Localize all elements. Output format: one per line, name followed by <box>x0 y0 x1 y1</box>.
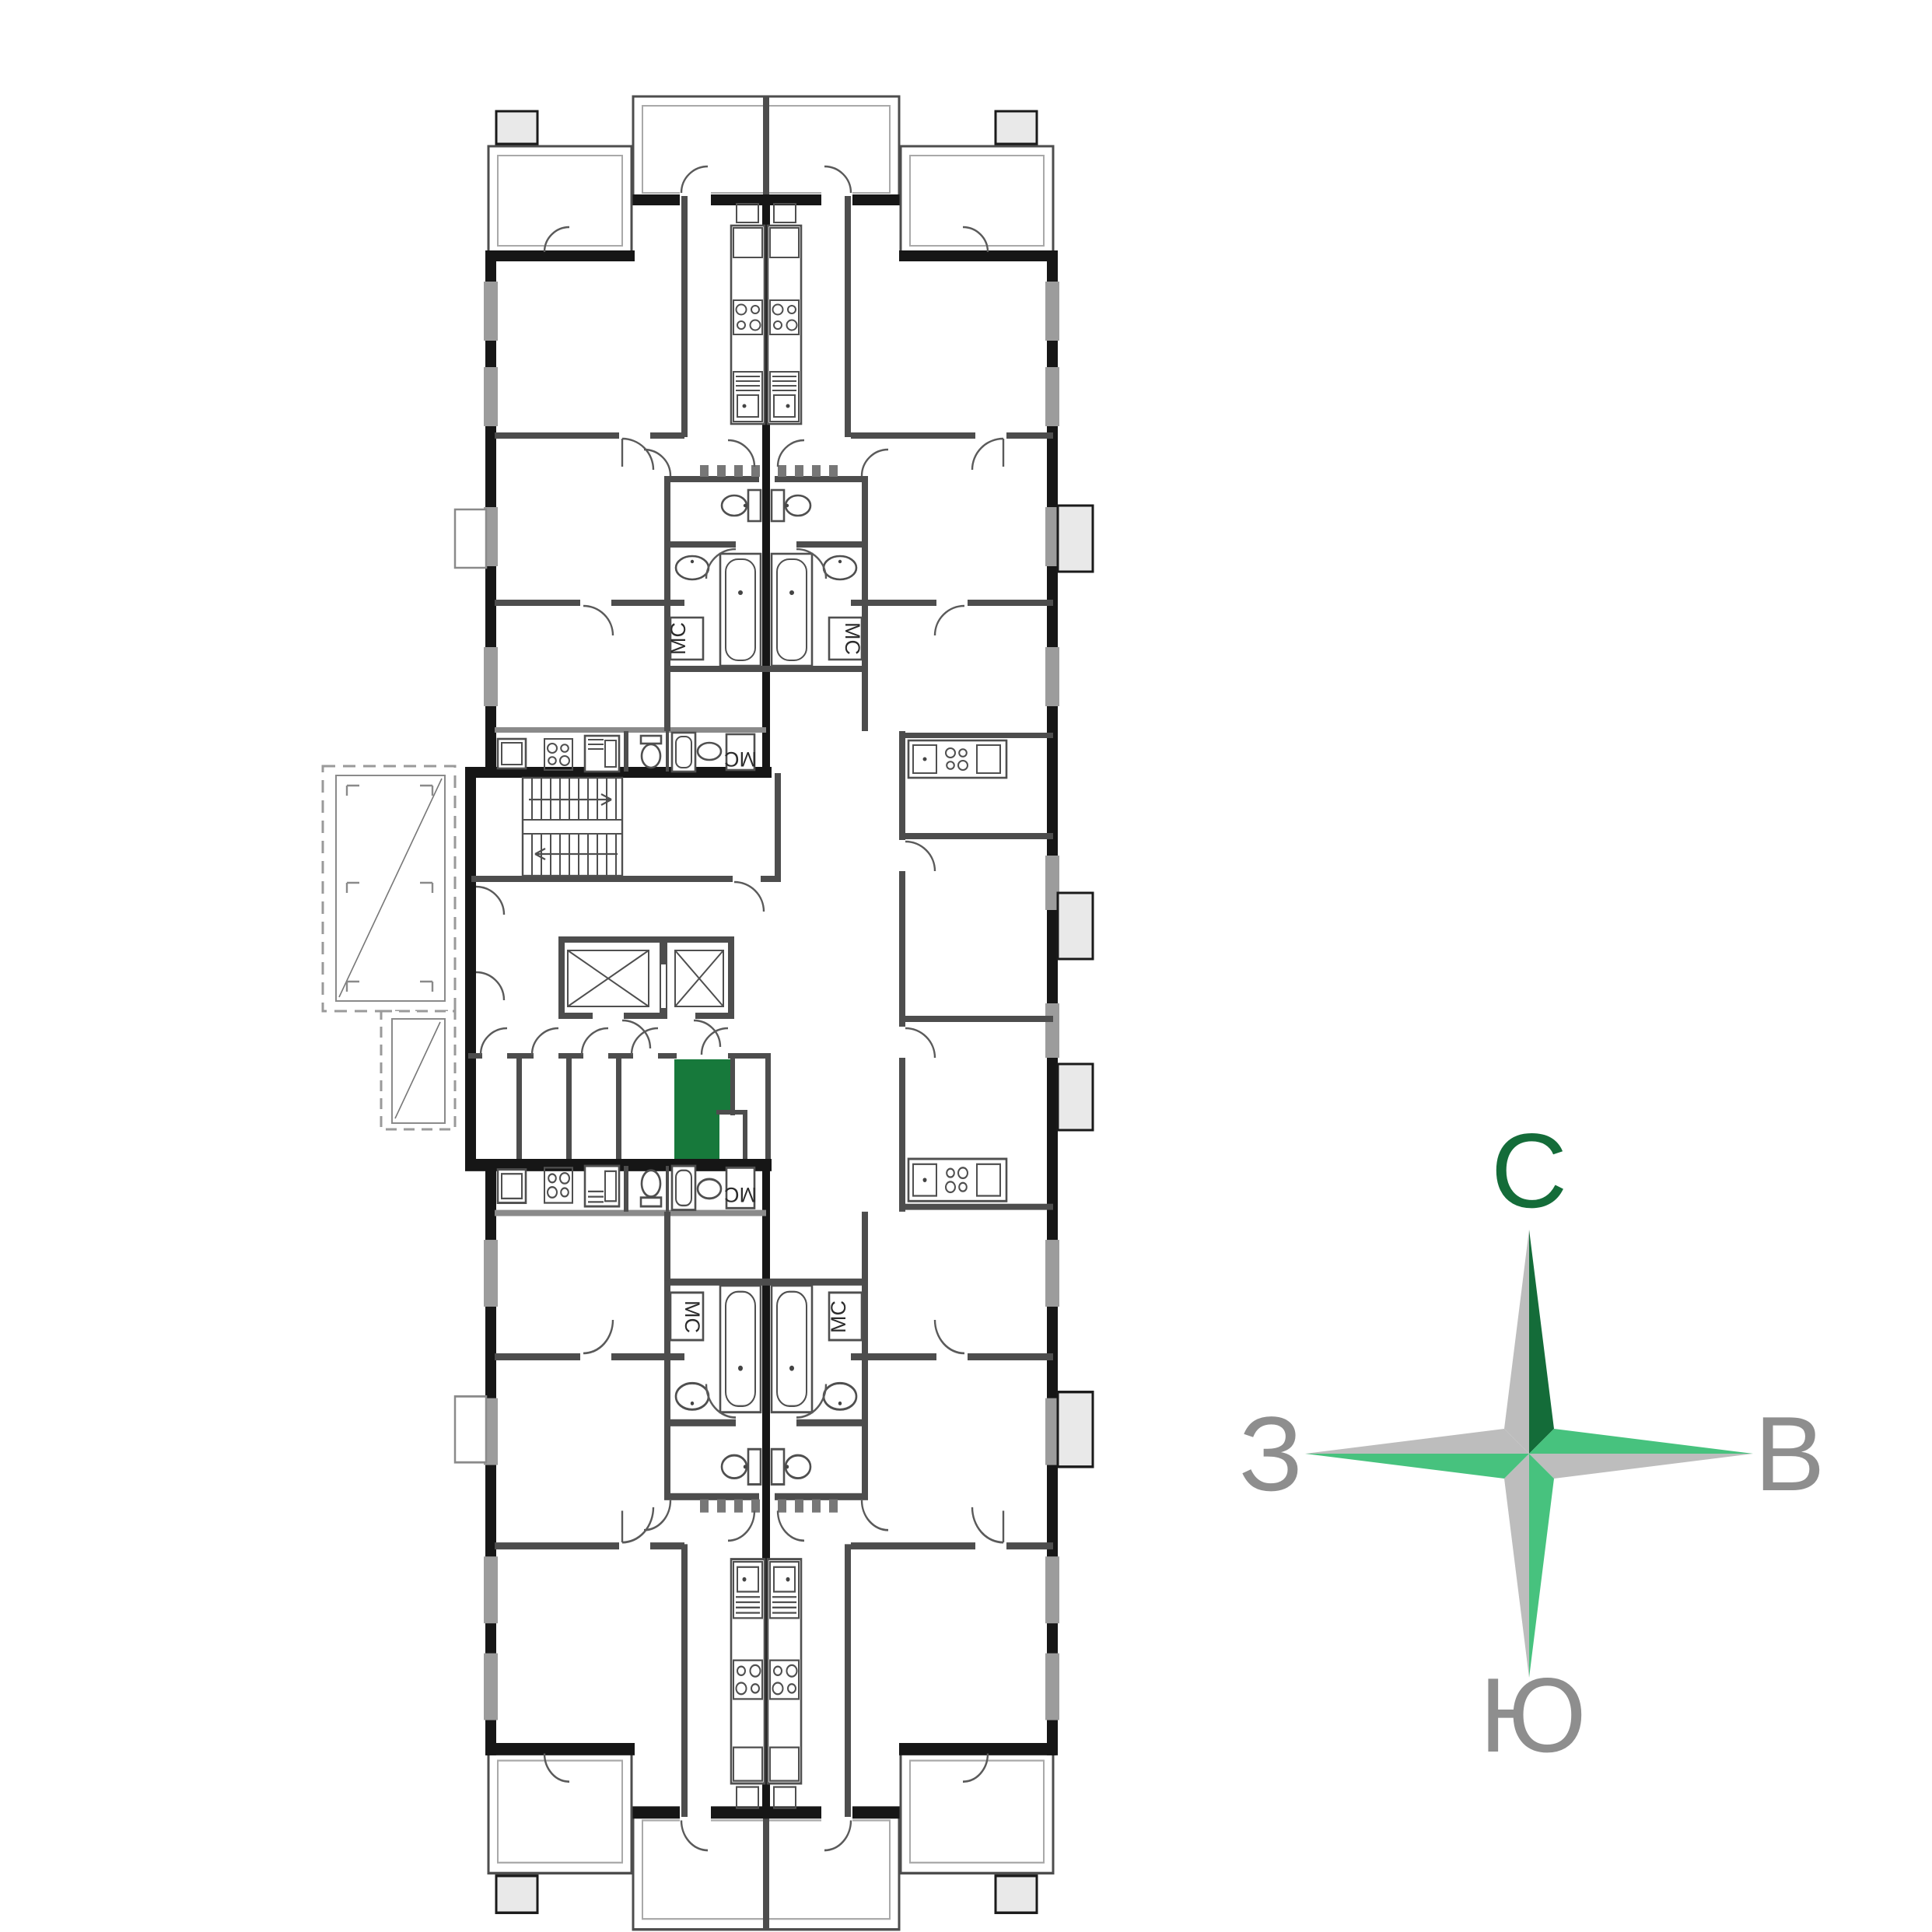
compass-star-icon <box>1305 1230 1753 1678</box>
kitchen-left <box>731 204 765 424</box>
floor-plan-page: МС МС МС МС МС МС С З В Ю <box>0 0 1932 1932</box>
compass-label-south: Ю <box>1479 1656 1586 1774</box>
ac-pad-left <box>496 111 537 144</box>
floor-plan-canvas: МС МС МС МС МС МС С З В Ю <box>0 0 1932 1932</box>
compass-label-north: С <box>1491 1111 1567 1230</box>
compass-rose: С З В Ю <box>1239 1111 1825 1774</box>
storage-label: МС <box>724 747 757 771</box>
balcony-bay <box>630 96 902 207</box>
stairwell <box>471 773 781 882</box>
elevator-large <box>568 950 649 1006</box>
storage-row <box>468 1028 771 1159</box>
storage-label: МС <box>841 622 864 655</box>
highlighted-unit[interactable] <box>674 1059 733 1159</box>
compass-label-west: З <box>1239 1395 1303 1513</box>
dashed-balcony-structure <box>323 766 455 1129</box>
ac-pad-right <box>996 111 1037 144</box>
storage-label: МС <box>827 1300 850 1333</box>
kitchen-right <box>768 204 801 424</box>
storage-label: МС <box>681 1300 704 1333</box>
storage-label: МС <box>724 1183 757 1206</box>
storage-label: МС <box>667 622 690 655</box>
elevator-small <box>675 950 723 1006</box>
building-bottom-wing <box>455 1132 1093 1930</box>
central-core <box>323 766 1093 1165</box>
lobby-door-arcs <box>476 882 764 1048</box>
loggia-right <box>901 146 1053 255</box>
elevator-block <box>558 936 734 1019</box>
core-right-rooms <box>899 786 1053 1134</box>
building-top-wing <box>455 96 1093 801</box>
compass-label-east: В <box>1755 1395 1825 1513</box>
core-wall-left <box>465 767 476 1165</box>
loggia-left <box>488 146 632 255</box>
